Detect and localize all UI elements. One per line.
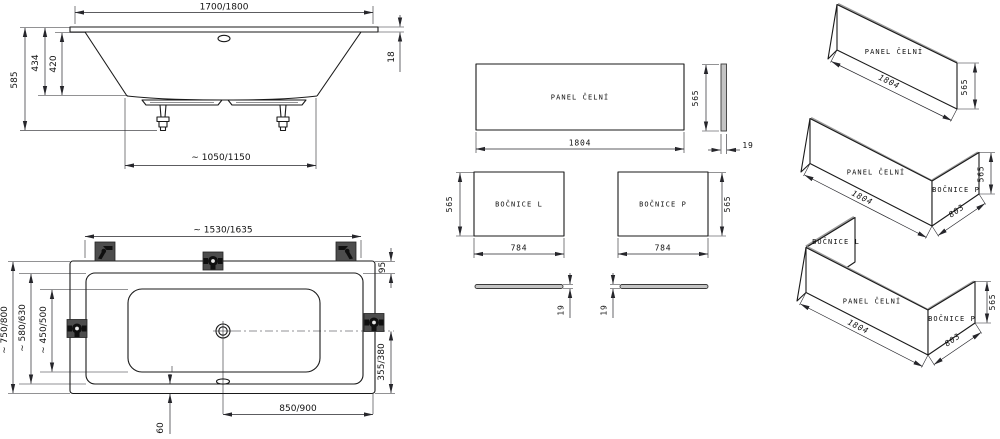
dim-label-mount-span: ∼ 1530/1635 (193, 226, 252, 236)
dim-label-left-thickness: 19 (557, 304, 566, 315)
panel-flat-views: PANEL ČELNÍ 1804 565 19 BOČNICE L 565 (445, 64, 754, 318)
dim-label-front-width: 1804 (569, 139, 591, 148)
dim-label-assembly3-height: 565 (988, 294, 997, 311)
mount-bracket-right (364, 314, 384, 332)
dim-assembly1-height: 565 (957, 63, 979, 109)
dim-heights: 585 434 420 (10, 28, 157, 131)
dim-label-total-height: 585 (10, 71, 20, 88)
tub-rim-profile (70, 27, 378, 32)
dim-left-panel-thickness: 19 (557, 273, 574, 318)
assembly1-front-label: PANEL ČELNÍ (865, 47, 923, 56)
dim-label-inner-depth: 420 (49, 55, 59, 72)
dim-label-length: 1700/1800 (200, 3, 249, 13)
support-frame (142, 100, 306, 105)
assembly-full-set: BOČNICE L PANEL ČELNÍ BOČNICE P 1804 803… (797, 217, 997, 368)
dim-left-panel-height: 565 (445, 173, 474, 237)
assembly-front-only: PANEL ČELNÍ 1804 565 (828, 4, 979, 122)
dim-front-panel-width: 1804 (476, 132, 684, 153)
dim-label-assembly2-height: 565 (977, 166, 986, 183)
mount-bracket-top-left (95, 242, 115, 261)
mount-bracket-left (67, 320, 87, 338)
assembly2-right-label: BOČNICE P (932, 185, 980, 194)
dim-label-assembly1-height: 565 (960, 79, 969, 96)
dim-label-drain-to-end: 850/900 (279, 404, 317, 414)
right-panel-edge-view (620, 285, 708, 289)
dim-right-panel-height: 565 (708, 173, 732, 237)
dim-label-drain-to-side: 355/380 (377, 343, 387, 381)
dim-front-panel-height: 565 (691, 65, 719, 132)
dim-right-panel-thickness: 19 (600, 273, 621, 318)
dim-label-front-height: 565 (691, 90, 700, 107)
dim-label-inner-width: ∼ 450/500 (39, 306, 49, 354)
left-panel-edge-view (475, 285, 563, 289)
dim-label-shell-height: 434 (31, 54, 41, 71)
dim-label-left-height: 565 (445, 196, 454, 213)
mount-bracket-top-right (336, 242, 356, 261)
dim-label-front-thickness: 19 (742, 141, 753, 150)
adjustable-leg-left (157, 105, 169, 131)
dim-left-panel-width: 784 (474, 238, 564, 258)
tub-interior-edge (128, 289, 320, 372)
dim-rim-thickness: 18 (378, 15, 404, 72)
bathtub-side-outline (70, 27, 378, 100)
front-panel-edge-view (721, 64, 727, 131)
drain-hole-side (218, 35, 230, 41)
dim-front-panel-thickness: 19 (708, 134, 754, 154)
side-panel-left-label: BOČNICE L (495, 200, 543, 209)
dim-label-right-height: 565 (723, 196, 732, 213)
dim-label-right-width: 784 (655, 244, 672, 253)
dim-label-rim-width: ∼ 580/630 (18, 304, 28, 352)
front-panel-label: PANEL ČELNÍ (551, 93, 609, 102)
bathtub-top-view: ∼ 1530/1635 ∼ 750/800 ∼ 580/630 ∼ 450/50… (0, 226, 395, 435)
dim-label-right-thickness: 19 (600, 304, 609, 315)
technical-drawing-canvas: 1700/1800 585 434 420 18 ∼ 1050/1150 (0, 0, 1000, 439)
dim-right-panel-width: 784 (618, 238, 708, 258)
adjustable-leg-right (277, 105, 289, 131)
assembly3-right-label: BOČNICE P (928, 314, 976, 323)
dim-label-overflow-offset: 60 (156, 422, 166, 434)
assembly2-front-label: PANEL ČELNÍ (847, 168, 905, 177)
dim-base-length: ∼ 1050/1150 (125, 98, 316, 169)
dim-label-rim-offset: 95 (378, 262, 388, 273)
assembly3-left-label: BOČNICE L (812, 237, 860, 246)
dim-length: 1700/1800 (75, 3, 373, 25)
dim-label-rim-thickness: 18 (387, 51, 397, 63)
dim-drain-to-side: 355/380 (375, 332, 395, 394)
mount-bracket-top-center (203, 252, 223, 270)
panel-3d-views: PANEL ČELNÍ 1804 565 PANEL ČELNÍ BOČNICE… (797, 4, 997, 368)
technical-drawing-page: 1700/1800 585 434 420 18 ∼ 1050/1150 (0, 0, 1000, 439)
bathtub-side-view: 1700/1800 585 434 420 18 ∼ 1050/1150 (10, 3, 404, 170)
dim-drain-to-end: 850/900 (223, 394, 373, 415)
assembly3-front-label: PANEL ČELNÍ (843, 297, 901, 306)
side-panel-right-label: BOČNICE P (639, 200, 687, 209)
assembly-front-with-right: PANEL ČELNÍ BOČNICE P 1804 803 565 (801, 118, 995, 239)
dim-assembly3-height: 565 (975, 282, 997, 324)
dim-label-outer-width: ∼ 750/800 (0, 306, 10, 354)
dim-label-left-width: 784 (511, 244, 528, 253)
dim-label-base-length: ∼ 1050/1150 (191, 153, 251, 163)
